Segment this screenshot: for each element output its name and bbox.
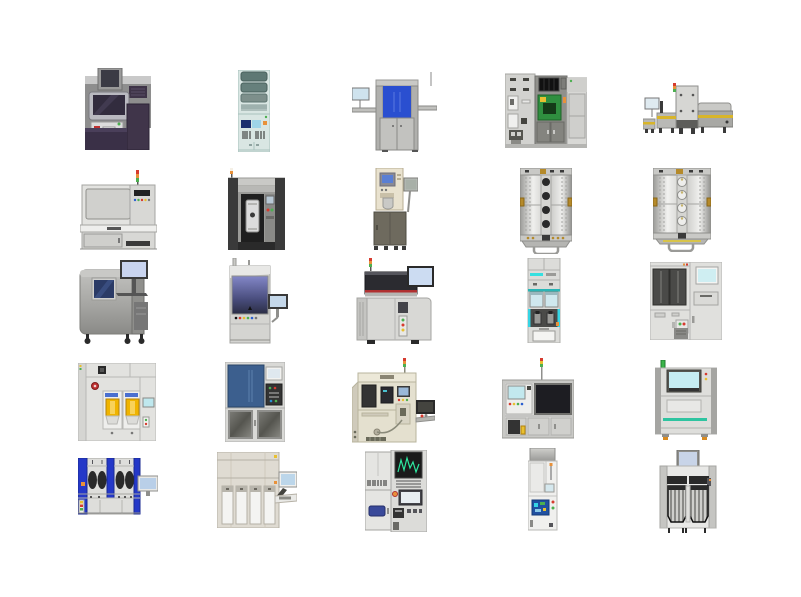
dual-loadport-machine-icon (658, 450, 718, 534)
bench-tester-icon (80, 170, 157, 250)
blue-window-inspection-icon (352, 72, 437, 152)
reagent-tower-icon (238, 70, 270, 152)
gradient-window-column-icon (228, 258, 288, 345)
clipart-sheet (0, 0, 801, 597)
wafer-chamber-tool-icon (228, 168, 285, 250)
standalone-dispenser-icon (368, 168, 418, 252)
vacuum-chamber-dark-ports-icon (520, 168, 572, 254)
beige-bonder-icon (352, 358, 435, 446)
track-loadports-icon (78, 363, 156, 441)
wet-bench-icon (78, 458, 158, 528)
aoi-machine-icon (655, 360, 717, 440)
microscope-cabinet-icon (78, 260, 156, 345)
sorter-tower-icon (526, 258, 562, 343)
chemical-dispense-tower-icon (217, 452, 297, 528)
assembly-cell-icon (502, 358, 574, 440)
conveyor-line-icon (643, 83, 733, 140)
cluster-cabinet-icon (505, 70, 587, 148)
test-rack-oscilloscope-icon (365, 450, 427, 532)
prober-with-monitor-icon (355, 258, 435, 345)
compact-analyzer-icon (528, 448, 558, 532)
blue-panel-cabinet-icon (225, 362, 285, 442)
two-window-cabinet-icon (650, 262, 722, 340)
vacuum-chamber-light-ports-icon (653, 168, 711, 252)
metrology-station-icon (85, 68, 151, 150)
